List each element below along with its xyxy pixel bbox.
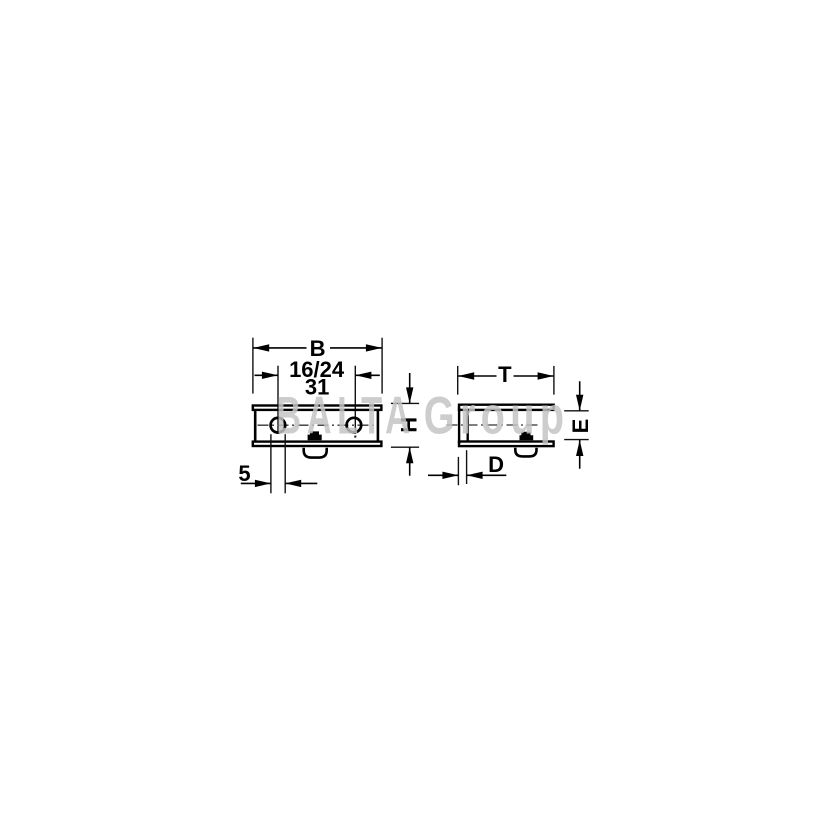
svg-text:D: D <box>488 452 504 477</box>
svg-text:Group: Group <box>424 386 569 445</box>
svg-text:T: T <box>498 362 512 387</box>
svg-text:5: 5 <box>238 461 250 486</box>
svg-text:BALTA: BALTA <box>276 387 415 445</box>
svg-text:E: E <box>568 419 593 434</box>
